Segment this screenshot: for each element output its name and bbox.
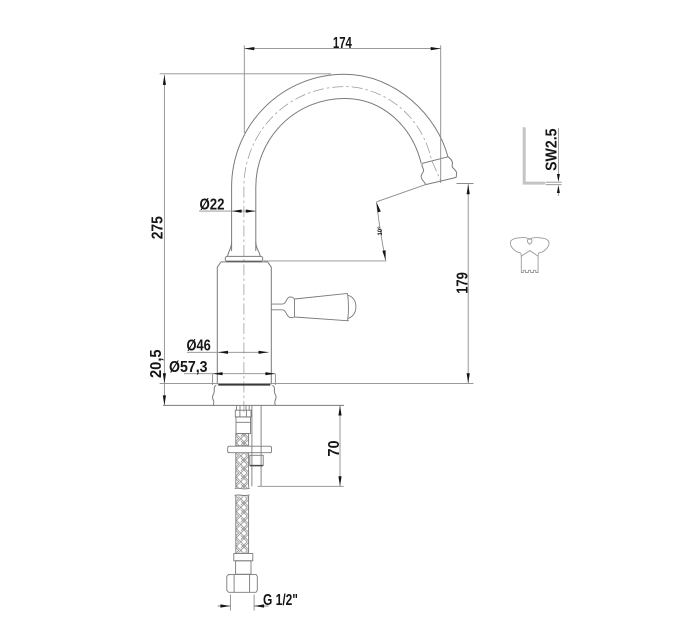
svg-text:174: 174 bbox=[333, 35, 352, 52]
svg-text:275: 275 bbox=[150, 216, 167, 239]
svg-text:G 1/2": G 1/2" bbox=[263, 592, 298, 609]
svg-text:10°: 10° bbox=[378, 226, 384, 236]
svg-text:20,5: 20,5 bbox=[148, 349, 165, 378]
svg-text:179: 179 bbox=[454, 272, 471, 294]
svg-text:SW2.5: SW2.5 bbox=[544, 128, 561, 170]
svg-text:70: 70 bbox=[326, 440, 343, 456]
svg-text:Ø22: Ø22 bbox=[200, 197, 225, 214]
svg-text:Ø57,3: Ø57,3 bbox=[169, 359, 208, 376]
svg-text:Ø46: Ø46 bbox=[187, 338, 211, 355]
